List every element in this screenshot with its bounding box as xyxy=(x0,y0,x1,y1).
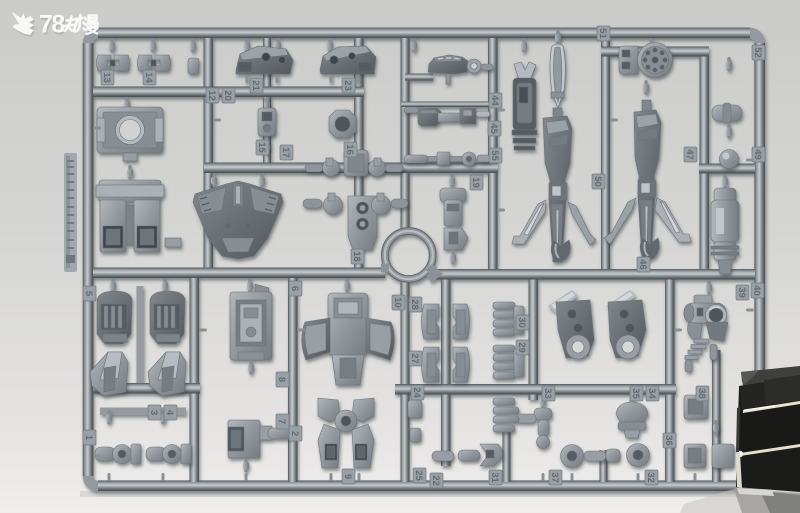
svg-text:12: 12 xyxy=(206,90,217,101)
svg-text:28: 28 xyxy=(409,299,420,310)
svg-text:32: 32 xyxy=(645,472,656,483)
svg-text:18: 18 xyxy=(351,251,362,262)
svg-text:38: 38 xyxy=(696,388,707,399)
svg-text:24: 24 xyxy=(411,387,422,398)
svg-text:25: 25 xyxy=(413,470,424,481)
svg-text:22: 22 xyxy=(430,475,441,486)
svg-text:15: 15 xyxy=(256,142,267,153)
svg-text:8: 8 xyxy=(276,377,287,382)
svg-text:52: 52 xyxy=(752,47,763,58)
svg-text:37: 37 xyxy=(549,472,560,483)
svg-text:4: 4 xyxy=(164,410,175,416)
svg-text:33: 33 xyxy=(542,388,553,399)
svg-text:39: 39 xyxy=(736,287,747,298)
svg-text:51: 51 xyxy=(597,28,608,39)
svg-text:50: 50 xyxy=(592,176,603,187)
svg-text:49: 49 xyxy=(752,149,763,160)
svg-text:27: 27 xyxy=(409,353,420,364)
svg-text:78: 78 xyxy=(39,11,65,39)
svg-text:2: 2 xyxy=(289,431,300,436)
svg-text:10: 10 xyxy=(392,297,403,308)
svg-text:13: 13 xyxy=(101,72,112,83)
svg-text:16: 16 xyxy=(344,144,355,155)
svg-text:55: 55 xyxy=(489,150,500,161)
svg-text:1: 1 xyxy=(83,435,94,441)
svg-text:3: 3 xyxy=(148,410,159,415)
svg-text:29: 29 xyxy=(516,342,527,353)
svg-text:47: 47 xyxy=(684,149,695,160)
svg-text:6: 6 xyxy=(289,286,300,291)
svg-text:44: 44 xyxy=(489,95,500,106)
svg-text:35: 35 xyxy=(630,388,641,399)
svg-text:34: 34 xyxy=(646,388,657,399)
svg-text:21: 21 xyxy=(250,80,261,91)
svg-text:46: 46 xyxy=(637,259,648,270)
svg-text:5: 5 xyxy=(83,291,94,297)
svg-text:19: 19 xyxy=(470,177,481,188)
svg-text:23: 23 xyxy=(342,80,353,91)
svg-text:31: 31 xyxy=(489,472,500,483)
svg-text:9: 9 xyxy=(342,474,353,479)
svg-text:30: 30 xyxy=(516,317,527,328)
svg-text:7: 7 xyxy=(276,419,287,424)
svg-text:17: 17 xyxy=(280,147,291,158)
svg-text:14: 14 xyxy=(143,72,154,83)
svg-text:45: 45 xyxy=(488,123,499,134)
svg-text:36: 36 xyxy=(663,435,674,446)
svg-text:20: 20 xyxy=(222,90,233,101)
svg-text:40: 40 xyxy=(751,285,762,296)
